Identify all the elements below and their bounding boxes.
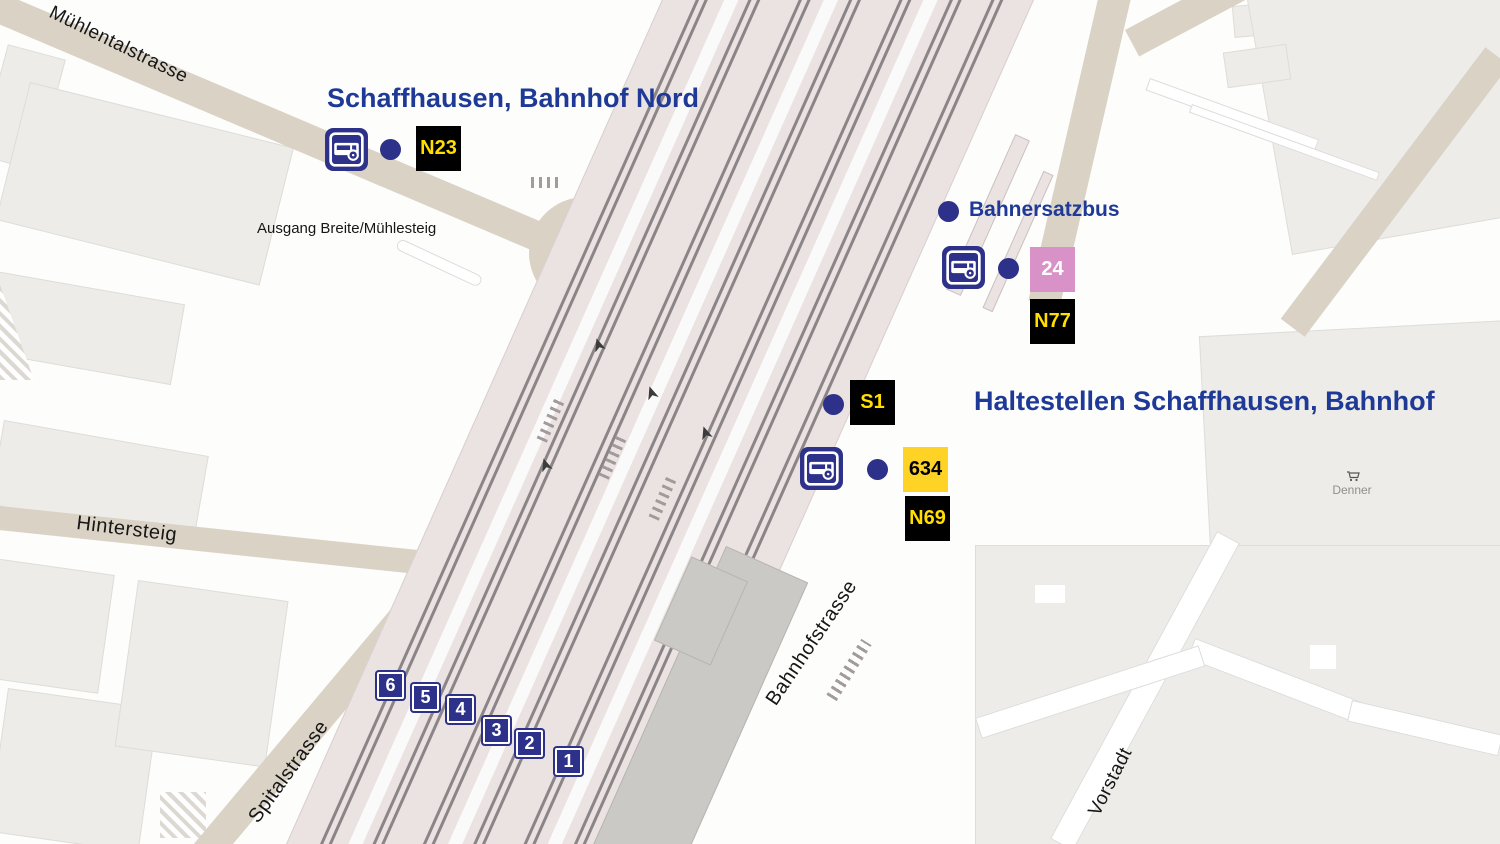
building [1199,320,1500,578]
label-bahnersatzbus: Bahnersatzbus [969,198,1120,222]
exit-label: Ausgang Breite/Mühlesteig [257,220,436,237]
building [0,558,115,694]
building-notch [1035,585,1065,603]
line-badge-634[interactable]: 634 [903,447,948,492]
bus-stop-icon[interactable] [324,127,369,172]
platform-marker-6[interactable]: 6 [375,670,406,701]
line-badge-24[interactable]: 24 [1030,247,1075,292]
bus-stop-icon[interactable] [799,446,844,491]
stairs [531,177,561,188]
stop-dot [867,459,888,480]
stairs [826,639,871,701]
hatched-area [160,792,206,838]
platform-marker-4[interactable]: 4 [445,694,476,725]
stop-dot [823,394,844,415]
poi-label-denner: Denner [1332,483,1371,497]
platform-marker-5[interactable]: 5 [410,682,441,713]
building-notch [1310,645,1336,669]
stop-dot [380,139,401,160]
platform-marker-3[interactable]: 3 [481,715,512,746]
line-badge-N23[interactable]: N23 [416,126,461,171]
platform-marker-2[interactable]: 2 [514,728,545,759]
line-badge-N69[interactable]: N69 [905,496,950,541]
line-badge-N77[interactable]: N77 [1030,299,1075,344]
ramp [395,238,483,288]
title-bahnhof-nord: Schaffhausen, Bahnhof Nord [327,83,699,114]
title-haltestellen: Haltestellen Schaffhausen, Bahnhof [974,386,1435,417]
line-badge-S1[interactable]: S1 [850,380,895,425]
platform-marker-1[interactable]: 1 [553,746,584,777]
bahnersatzbus-dot [938,201,959,222]
bus-stop-icon[interactable] [941,245,986,290]
shopping-cart-icon [1346,471,1360,482]
building [115,580,289,768]
station-map: Mühlentalstrasse Hintersteig Spitalstras… [0,0,1500,844]
stop-dot [998,258,1019,279]
